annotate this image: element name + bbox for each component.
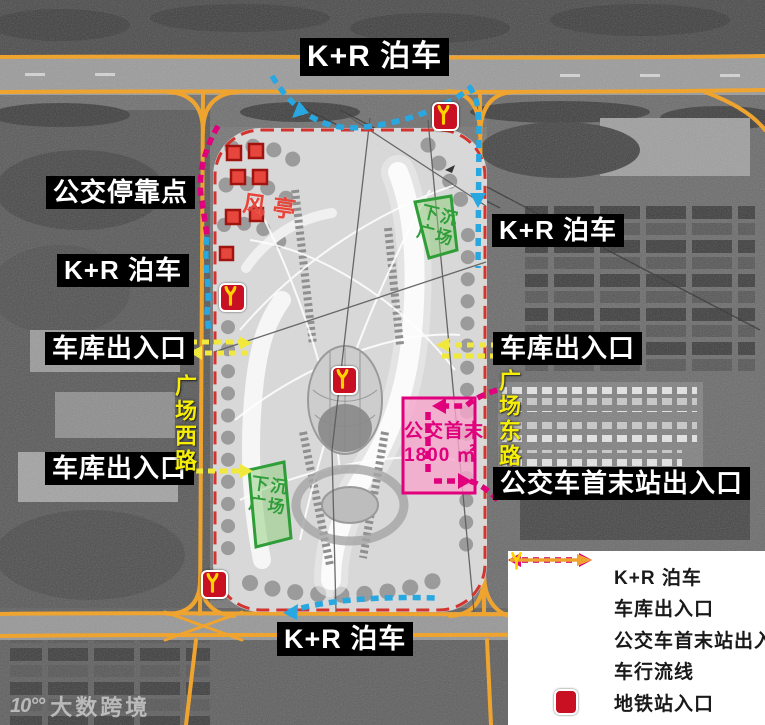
- road-name-plaza-east: 广场东路: [492, 369, 524, 469]
- label-garage-right: 车库出入口: [493, 332, 642, 365]
- label-kr-parking-top: K+R 泊车: [300, 38, 449, 76]
- legend: K+R 泊车 车库出入口 公交车首末站出入口: [508, 551, 765, 725]
- metro-entrance-icon: [219, 283, 246, 312]
- metro-entrance-icon: [331, 366, 358, 395]
- watermark-logo-icon: 10°°: [10, 695, 44, 718]
- legend-row-bus-terminal: 公交车首末站出入口: [518, 624, 757, 654]
- label-kr-parking-bottom: K+R 泊车: [277, 622, 413, 656]
- label-garage-left-top: 车库出入口: [45, 332, 194, 365]
- label-bus-terminal-exit: 公交车首末站出入口: [493, 467, 750, 500]
- label-sunken-plaza-left: 下沉 广场: [247, 474, 290, 518]
- watermark: 10°° 大数跨境: [10, 690, 150, 722]
- legend-row-vehicle-flow: 车行流线: [518, 656, 757, 686]
- metro-entrance-icon: [432, 102, 459, 131]
- site-plan-map: K+R 泊车 公交停靠点 K+R 泊车 车库出入口 车库出入口 K+R 泊车 车…: [0, 0, 765, 725]
- legend-row-metro: 地铁站入口: [518, 687, 757, 717]
- legend-row-garage: 车库出入口: [518, 593, 757, 623]
- label-bus-terminus: 公交首末 1800 ㎡: [404, 420, 484, 468]
- road-name-plaza-west: 广场西路: [168, 374, 200, 474]
- metro-entrance-icon: [201, 570, 228, 599]
- label-kr-parking-right: K+R 泊车: [492, 214, 624, 247]
- watermark-text: 大数跨境: [50, 690, 150, 722]
- label-bus-stop: 公交停靠点: [46, 176, 195, 209]
- metro-legend-icon: [518, 689, 614, 715]
- label-kr-parking-left: K+R 泊车: [57, 254, 189, 287]
